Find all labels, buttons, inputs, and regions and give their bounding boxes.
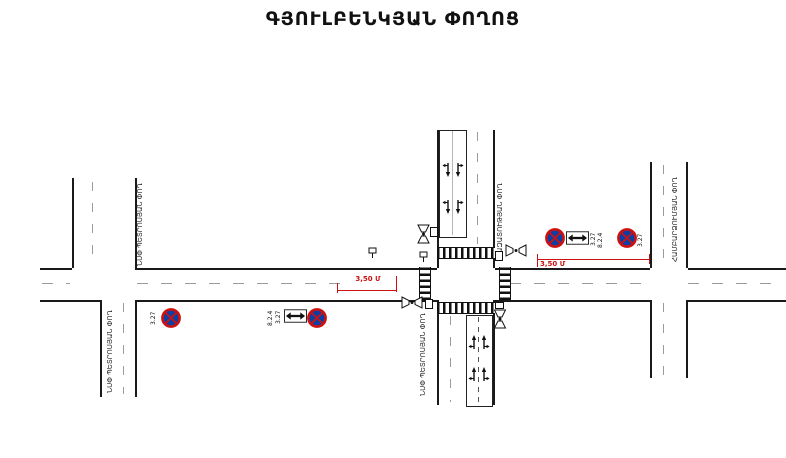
traffic-signal-icon (505, 244, 527, 257)
lane-arrow-straight-right-icon (455, 199, 464, 213)
dimension-label-east: 3,50 Մ (540, 261, 570, 268)
sign-code-label: 3.27 (638, 229, 644, 247)
centerline-dash (92, 182, 93, 264)
dimension-label-west: 3,50 Մ (342, 276, 394, 283)
north-curb-segment (688, 268, 786, 270)
left-street-curb (72, 178, 74, 268)
street-label-center-bottom: ՆՍՓ ՊԵՏՐՈՍՅԱՆ ՓՈՂ (420, 314, 427, 396)
lane-arrow-straight-right-icon (481, 336, 490, 350)
centerline-dash (137, 283, 345, 284)
dimension-tick (337, 283, 338, 293)
crosswalk-north (437, 247, 495, 259)
centerline-dash (688, 283, 784, 284)
left-street-curb (100, 300, 102, 397)
traffic-signal-icon (401, 296, 423, 309)
center-street-curb (437, 300, 439, 405)
left-street-curb (135, 300, 137, 397)
dimension-tick (537, 254, 538, 267)
direction-plate-icon (284, 309, 307, 323)
lane-arrow-straight-left-icon (442, 199, 451, 213)
street-label-left-top: ՆՍՓ ՊԵՏՐՈՍՅԱՆ ՓՈՂ (137, 174, 144, 266)
south-curb-segment (495, 300, 650, 302)
right-street-curb (650, 300, 652, 378)
lane-arrow-straight-left-icon (468, 336, 477, 350)
page-title: ԳՅՈՒԼԲԵՆԿՅԱՆ ՓՈՂՈՑ (0, 8, 786, 30)
lane-box-south (466, 315, 493, 407)
lane-arrow-straight-right-icon (481, 368, 490, 382)
plate-code-label: 8.2.4 (268, 304, 274, 326)
north-curb-segment (135, 268, 437, 270)
north-curb-segment (40, 268, 72, 270)
dimension-tick (396, 276, 397, 292)
lane-divider (452, 131, 453, 235)
sign-code-label: 3.27 (151, 305, 157, 325)
right-street-curb (650, 162, 652, 268)
right-street-curb (686, 162, 688, 268)
centerline-dash (42, 283, 70, 284)
centerline-dash (123, 303, 124, 394)
crosswalk-south (437, 302, 495, 314)
centerline-dash (663, 165, 664, 264)
no-stopping-sign-icon (617, 228, 637, 248)
signal-pole-icon (419, 251, 428, 263)
south-curb-segment (688, 300, 786, 302)
signal-pole-icon (430, 227, 438, 237)
no-stopping-sign-icon (545, 228, 565, 248)
centerline-dash (450, 316, 451, 402)
centerline-dash (663, 303, 664, 375)
crosswalk-east (499, 267, 511, 300)
traffic-signal-icon (417, 224, 430, 244)
signal-pole-icon (495, 302, 504, 309)
lane-arrow-straight-right-icon (455, 162, 464, 176)
south-curb-segment (40, 300, 100, 302)
street-label-center-top: ԱԶԱՏՈՒԹՅԱՆ ՓՈՂ (497, 155, 504, 253)
centerline-dash (510, 283, 648, 284)
north-curb-segment (495, 268, 650, 270)
traffic-signal-icon (493, 309, 507, 329)
direction-plate-icon (566, 231, 589, 245)
dimension-tick (649, 254, 650, 264)
signal-pole-icon (495, 251, 503, 261)
dimension-line (338, 290, 396, 291)
south-curb-segment (137, 300, 437, 302)
lane-box-north (439, 130, 467, 238)
plate-code-label: 8.2.4 (598, 226, 604, 248)
lane-divider (478, 317, 479, 403)
lane-arrow-straight-left-icon (442, 162, 451, 176)
right-street-curb (686, 300, 688, 378)
no-stopping-sign-icon (161, 308, 181, 328)
lane-arrow-straight-left-icon (468, 368, 477, 382)
street-label-left-bottom: ՆՍՓ ՊԵՏՐՈՍՅԱՆ ՓՈՂ (107, 301, 114, 393)
signal-pole-icon (425, 299, 433, 309)
traffic-scheme-page: ԳՅՈՒԼԲԵՆԿՅԱՆ ՓՈՂՈՑ (0, 0, 786, 458)
no-stopping-sign-icon (307, 308, 327, 328)
signal-pole-icon (368, 247, 377, 259)
sign-code-label: 3.27 (276, 306, 282, 324)
centerline-dash (477, 132, 478, 244)
street-label-right: ՀԱՄԲԱՐՁՈՒՄՅԱՆ ՓՈՂ (672, 162, 679, 262)
